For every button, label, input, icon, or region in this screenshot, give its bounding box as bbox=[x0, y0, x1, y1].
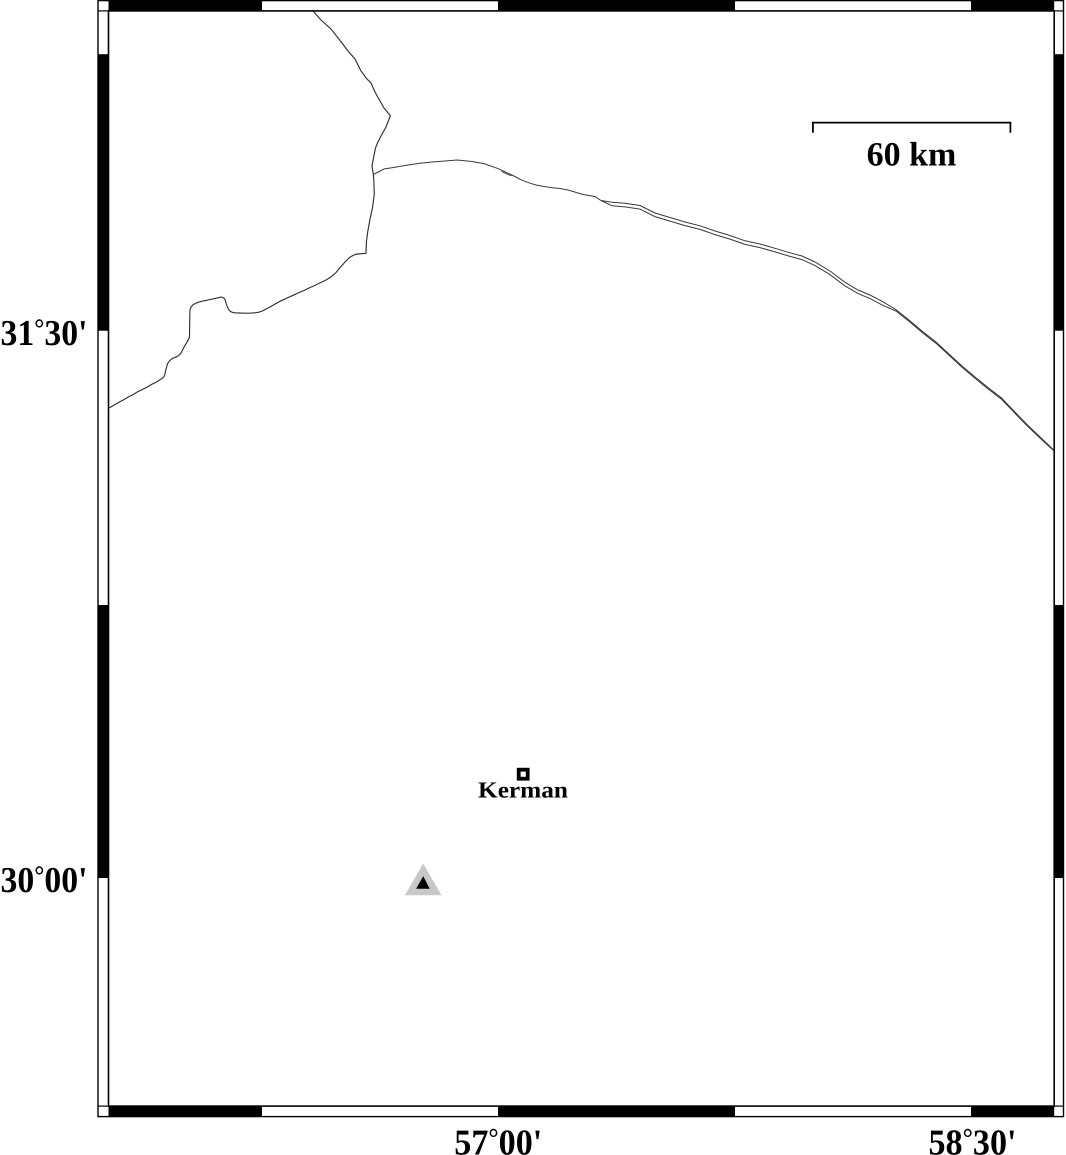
svg-text:58°30': 58°30' bbox=[929, 1122, 1017, 1155]
svg-text:60 km: 60 km bbox=[867, 136, 957, 173]
svg-text:Kerman: Kerman bbox=[478, 778, 568, 803]
svg-text:30°00': 30°00' bbox=[1, 859, 88, 900]
svg-text:31°30': 31°30' bbox=[1, 312, 88, 353]
svg-text:57°00': 57°00' bbox=[454, 1122, 542, 1155]
